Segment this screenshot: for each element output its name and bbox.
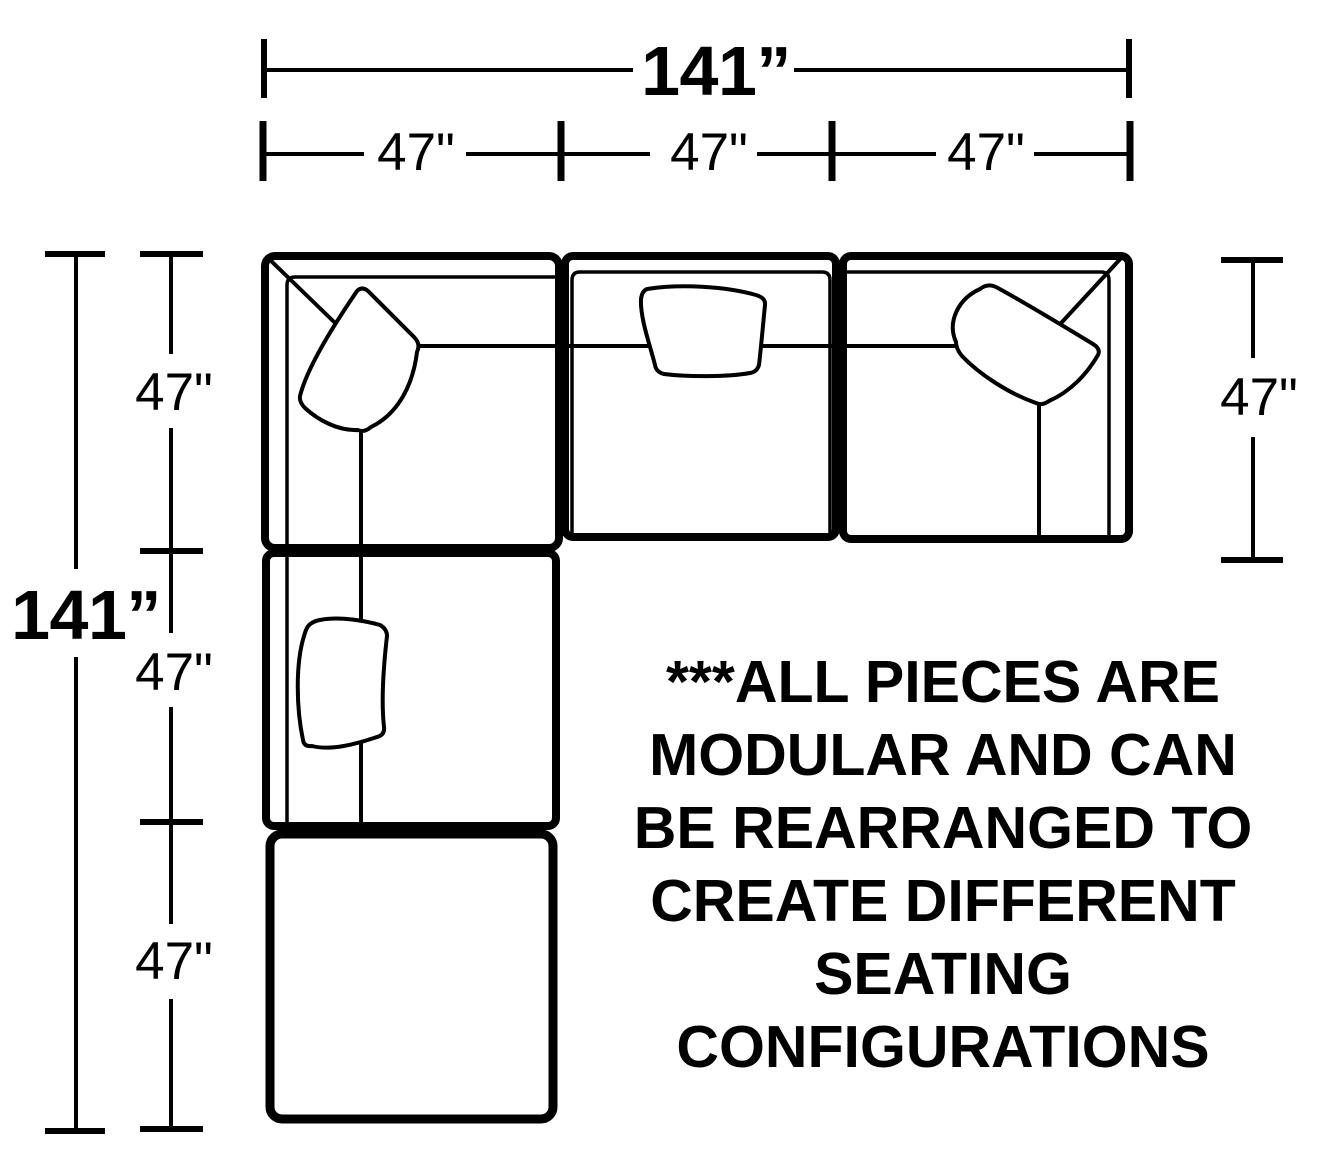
svg-text:47": 47" bbox=[947, 123, 1025, 182]
svg-text:47": 47" bbox=[670, 123, 748, 182]
svg-text:47": 47" bbox=[135, 932, 213, 991]
svg-text:47": 47" bbox=[135, 363, 213, 422]
svg-text:BE REARRANGED TO: BE REARRANGED TO bbox=[634, 795, 1252, 861]
svg-text:MODULAR AND CAN: MODULAR AND CAN bbox=[649, 722, 1237, 788]
svg-text:SEATING: SEATING bbox=[814, 941, 1072, 1007]
svg-text:141”: 141” bbox=[641, 32, 791, 110]
svg-text:CONFIGURATIONS: CONFIGURATIONS bbox=[676, 1014, 1209, 1080]
svg-text:47": 47" bbox=[135, 643, 213, 702]
svg-text:47": 47" bbox=[377, 123, 455, 182]
svg-text:47": 47" bbox=[1220, 368, 1298, 427]
svg-text:CREATE DIFFERENT: CREATE DIFFERENT bbox=[650, 868, 1236, 934]
svg-text:***ALL PIECES ARE: ***ALL PIECES ARE bbox=[666, 649, 1220, 715]
